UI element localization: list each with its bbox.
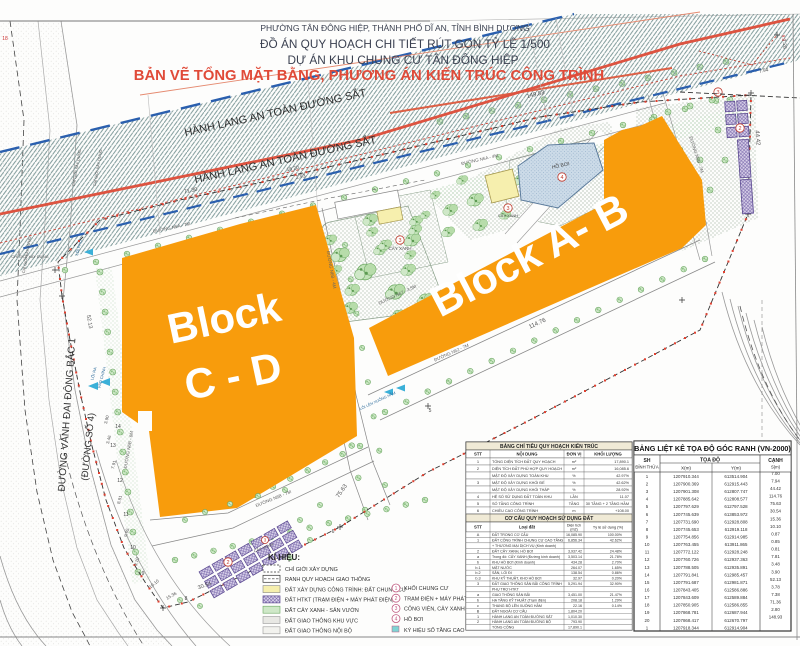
svg-text:9.5: 9.5	[781, 35, 787, 42]
svg-text:m²: m²	[572, 467, 577, 471]
svg-text:264.07: 264.07	[571, 566, 582, 570]
svg-text:75.63: 75.63	[770, 501, 782, 506]
svg-text:42.62%: 42.62%	[610, 539, 623, 543]
svg-text:16,085.6: 16,085.6	[614, 467, 629, 471]
svg-text:1207791.841: 1207791.841	[673, 572, 699, 577]
svg-text:b.2: b.2	[475, 571, 480, 575]
svg-text:BẢNG CHỈ TIÊU QUY HOẠCH KIẾN T: BẢNG CHỈ TIÊU QUY HOẠCH KIẾN TRÚC	[500, 442, 598, 450]
svg-text:A: A	[477, 533, 480, 537]
svg-text:11: 11	[645, 550, 650, 555]
svg-text:PHỤ TRỢ HTKT: PHỤ TRỢ HTKT	[492, 588, 520, 592]
svg-text:1207760.726: 1207760.726	[673, 557, 699, 562]
svg-text:3.90: 3.90	[771, 569, 780, 574]
svg-text:16,085.90: 16,085.90	[566, 533, 582, 537]
svg-text:2: 2	[477, 620, 479, 624]
svg-text:1207918.344: 1207918.344	[673, 625, 699, 630]
svg-text:PHƯỜNG TÂN ĐÔNG HIỆP, THÀNH PH: PHƯỜNG TÂN ĐÔNG HIỆP, THÀNH PHỐ DĨ AN, T…	[260, 22, 529, 33]
svg-text:148.93: 148.93	[769, 615, 783, 620]
svg-text:1207797.629: 1207797.629	[673, 504, 699, 509]
svg-text:612808.577: 612808.577	[724, 497, 748, 502]
svg-text:612919.118: 612919.118	[725, 527, 748, 532]
svg-text:1207901.308: 1207901.308	[673, 489, 699, 494]
svg-text:STT: STT	[474, 452, 482, 457]
svg-text:7.81: 7.81	[771, 554, 780, 559]
svg-text:MẬT ĐỘ XÂY DỰNG KHỐI ĐẾ: MẬT ĐỘ XÂY DỰNG KHỐI ĐẾ	[492, 480, 545, 485]
svg-text:1207791.687: 1207791.687	[673, 580, 699, 585]
svg-text:434.28: 434.28	[571, 560, 582, 564]
svg-text:612915.443: 612915.443	[724, 482, 748, 487]
svg-text:30.54: 30.54	[770, 509, 782, 514]
svg-text:2: 2	[738, 126, 741, 132]
svg-text:X(m): X(m)	[681, 466, 691, 471]
svg-text:613911.865: 613911.865	[725, 542, 748, 547]
svg-text:613853.972: 613853.972	[724, 512, 748, 517]
svg-text:m: m	[572, 509, 575, 513]
svg-text:15: 15	[645, 580, 650, 585]
svg-text:ĐẤT GIAO THÔNG NỘI BỘ: ĐẤT GIAO THÔNG NỘI BỘ	[285, 628, 352, 635]
svg-text:TỔNG CỘNG: TỔNG CỘNG	[492, 625, 514, 630]
svg-text:30 TẦNG + 2 TẦNG HẦM: 30 TẦNG + 2 TẦNG HẦM	[586, 502, 629, 506]
svg-text:2.70%: 2.70%	[612, 560, 623, 564]
svg-text:3: 3	[395, 606, 398, 612]
svg-text:52.13: 52.13	[770, 577, 782, 582]
svg-text:20: 20	[645, 618, 650, 623]
svg-text:KÝ HIỆU SỐ TẦNG CAO: KÝ HIỆU SỐ TẦNG CAO	[404, 626, 464, 634]
svg-text:CƠ CẤU QUY HOẠCH SỬ DỤNG ĐẤT: CƠ CẤU QUY HOẠCH SỬ DỤNG ĐẤT	[505, 515, 594, 522]
svg-text:Trong đó: CÂY XANH (Đường kín: Trong đó: CÂY XANH (Đường kính doanh)	[492, 555, 560, 559]
svg-text:TỌA ĐỘ: TỌA ĐỘ	[700, 456, 720, 464]
svg-text:CÂY XANH: CÂY XANH	[498, 213, 518, 218]
svg-text:44.42: 44.42	[770, 486, 782, 491]
svg-text:ĐẤT XÂY DỰNG CÔNG TRÌNH: ĐẤT C: ĐẤT XÂY DỰNG CÔNG TRÌNH: ĐẤT CHUNG CƯ	[285, 586, 407, 593]
svg-text:21.47%: 21.47%	[610, 593, 623, 597]
svg-text:1207745.653: 1207745.653	[673, 527, 699, 532]
svg-text:KÍ HIỆU:: KÍ HIỆU:	[268, 553, 300, 562]
svg-text:1207868.417: 1207868.417	[673, 618, 699, 623]
svg-text:4: 4	[395, 616, 398, 622]
svg-text:612985.457: 612985.457	[724, 572, 748, 577]
svg-text:9: 9	[142, 571, 145, 577]
svg-text:10: 10	[645, 542, 650, 547]
svg-text:612586.886: 612586.886	[724, 588, 748, 593]
svg-text:2: 2	[477, 549, 479, 553]
svg-text:NỘI DUNG: NỘI DUNG	[517, 452, 538, 457]
svg-text:ĐẤT NGOÀI CƠ CẤU: ĐẤT NGOÀI CƠ CẤU	[492, 609, 527, 613]
svg-text:10: 10	[130, 545, 136, 551]
svg-text:THANG BỘ LÊN XUỐNG HẦM: THANG BỘ LÊN XUỐNG HẦM	[492, 603, 542, 608]
svg-text:BẢN VẼ TỔNG MẶT BẰNG, PHƯƠNG Á: BẢN VẼ TỔNG MẶT BẰNG, PHƯƠNG ÁN KIẾN TRÚ…	[134, 66, 604, 84]
svg-text:793.90: 793.90	[571, 620, 582, 624]
svg-text:612928.808: 612928.808	[724, 519, 748, 524]
svg-text:14: 14	[115, 424, 121, 430]
svg-text:CHỈ GIỚI XÂY DỰNG: CHỈ GIỚI XÂY DỰNG	[11, 254, 48, 259]
svg-text:1,010.30: 1,010.30	[568, 615, 582, 619]
svg-text:612589.884: 612589.884	[724, 595, 748, 600]
svg-text:SÂN, LỐI ĐI: SÂN, LỐI ĐI	[492, 570, 512, 575]
svg-text:CÂY XANH: CÂY XANH	[389, 245, 412, 251]
svg-text:71.36: 71.36	[770, 600, 782, 605]
svg-text:RANH QUY HOẠCH GIAO THÔNG: RANH QUY HOẠCH GIAO THÔNG	[285, 576, 370, 583]
svg-text:42.62%: 42.62%	[616, 481, 630, 485]
svg-text:1.29%: 1.29%	[612, 598, 623, 602]
svg-text:ĐẤT GIAO THÔNG KHU VỰC: ĐẤT GIAO THÔNG KHU VỰC	[285, 617, 358, 624]
svg-text:ĐẤT CÂY XANH - SÂN VƯỜN: ĐẤT CÂY XANH - SÂN VƯỜN	[285, 607, 359, 614]
svg-text:19: 19	[645, 610, 650, 615]
svg-text:6,856.34: 6,856.34	[568, 539, 582, 543]
svg-text:0.86%: 0.86%	[612, 571, 623, 575]
svg-text:18: 18	[2, 36, 8, 42]
svg-text:2: 2	[226, 560, 229, 566]
svg-text:100.00%: 100.00%	[608, 533, 623, 537]
svg-text:4: 4	[560, 175, 563, 181]
svg-text:7.94: 7.94	[771, 478, 780, 483]
svg-text:612928.248: 612928.248	[724, 550, 748, 555]
svg-text:MẬT ĐỘ XÂY DỰNG KHỐI THÁP: MẬT ĐỘ XÂY DỰNG KHỐI THÁP	[492, 487, 550, 492]
svg-text:HẠ TẦNG KỸ THUẬT (Trạm điện): HẠ TẦNG KỸ THUẬT (Trạm điện)	[492, 597, 546, 602]
svg-text:DIỆN TÍCH ĐẤT PHÙ HỢP QUY HOẠC: DIỆN TÍCH ĐẤT PHÙ HỢP QUY HOẠCH	[492, 466, 562, 471]
svg-text:0.85: 0.85	[771, 539, 780, 544]
svg-text:STT: STT	[474, 525, 482, 530]
svg-text:1207900.369: 1207900.369	[673, 482, 699, 487]
svg-text:24.48%: 24.48%	[610, 549, 623, 553]
svg-text:HỒ BƠI: HỒ BƠI	[404, 616, 423, 623]
svg-text:21.78%: 21.78%	[610, 555, 623, 559]
svg-text:GIAO THÔNG SÂN BÃI: GIAO THÔNG SÂN BÃI	[492, 592, 530, 597]
svg-text:16: 16	[645, 588, 650, 593]
svg-text:612807.747: 612807.747	[724, 489, 748, 494]
svg-text:7.00: 7.00	[771, 471, 780, 476]
svg-text:ĐỒ ÁN QUY HOẠCH CHI TIẾT RÚT G: ĐỒ ÁN QUY HOẠCH CHI TIẾT RÚT GỌN TỶ LỆ 1…	[260, 37, 550, 51]
svg-text:612586.855: 612586.855	[724, 603, 748, 608]
svg-text:Tỷ lệ sử dụng (%): Tỷ lệ sử dụng (%)	[593, 526, 624, 530]
svg-text:ĐẤT GIAO THÔNG SÂN BÃI CÔNG TR: ĐẤT GIAO THÔNG SÂN BÃI CÔNG TRÌNH	[492, 581, 562, 586]
svg-text:LẦN: LẦN	[570, 495, 578, 499]
svg-text:+ THƯƠNG MẠI DỊCH VỤ (Kinh doa: + THƯƠNG MẠI DỊCH VỤ (Kinh doanh)	[492, 544, 556, 548]
svg-text:CẠNH: CẠNH	[768, 458, 783, 464]
svg-text:28.92%: 28.92%	[616, 488, 630, 492]
svg-text:114.76: 114.76	[769, 494, 783, 499]
svg-text:1207772.122: 1207772.122	[673, 550, 699, 555]
svg-text:1207868.781: 1207868.781	[673, 610, 699, 615]
svg-text:8: 8	[185, 596, 188, 602]
svg-text:+108.00: +108.00	[615, 509, 629, 513]
svg-text:SH: SH	[644, 458, 651, 464]
svg-text:612914.904: 612914.904	[724, 625, 748, 630]
svg-text:10.10: 10.10	[770, 524, 782, 529]
svg-text:3.78: 3.78	[771, 584, 780, 589]
svg-text:m²: m²	[572, 460, 577, 464]
svg-text:1207850.905: 1207850.905	[673, 603, 699, 608]
svg-text:1: 1	[395, 586, 398, 592]
svg-text:CHỈ GIỚI XÂY DỰNG: CHỈ GIỚI XÂY DỰNG	[285, 566, 338, 573]
svg-text:1207843.609: 1207843.609	[673, 595, 699, 600]
svg-text:1: 1	[477, 539, 479, 543]
svg-text:1207763.455: 1207763.455	[673, 542, 699, 547]
svg-text:612935.891: 612935.891	[724, 565, 748, 570]
svg-text:1: 1	[477, 615, 479, 619]
svg-text:1207745.639: 1207745.639	[673, 512, 699, 517]
svg-text:SỐ TẦNG CÔNG TRÌNH: SỐ TẦNG CÔNG TRÌNH	[492, 501, 534, 506]
svg-text:1207731.690: 1207731.690	[673, 519, 699, 524]
svg-text:1207843.405: 1207843.405	[673, 588, 699, 593]
svg-text:KHU HỒ BƠI (Kinh doanh): KHU HỒ BƠI (Kinh doanh)	[492, 559, 535, 564]
svg-text:138.54: 138.54	[571, 571, 582, 575]
svg-text:42.97%: 42.97%	[616, 474, 630, 478]
svg-text:17,890.1: 17,890.1	[614, 460, 629, 464]
svg-text:32.97: 32.97	[573, 577, 582, 581]
svg-text:S(m): S(m)	[771, 465, 781, 470]
svg-text:KHỐI CHUNG CƯ: KHỐI CHUNG CƯ	[404, 585, 449, 592]
svg-text:11.07: 11.07	[620, 495, 629, 499]
svg-text:3: 3	[506, 206, 509, 212]
svg-text:0.81: 0.81	[771, 547, 780, 552]
svg-text:KHỐI LƯỢNG: KHỐI LƯỢNG	[594, 452, 622, 457]
svg-text:2: 2	[395, 596, 398, 602]
svg-text:MẶT NƯỚC: MẶT NƯỚC	[492, 565, 512, 570]
svg-text:HỆ SỐ SỬ DỤNG ĐẤT TOÀN KHU: HỆ SỐ SỬ DỤNG ĐẤT TOÀN KHU	[492, 494, 552, 499]
svg-text:3,937.42: 3,937.42	[568, 549, 582, 553]
svg-text:b: b	[477, 598, 479, 602]
svg-text:Loại đất: Loại đất	[519, 525, 536, 530]
svg-text:14: 14	[645, 572, 650, 577]
svg-text:b.3: b.3	[475, 577, 480, 581]
svg-text:3: 3	[477, 582, 479, 586]
svg-text:ĐỈNH THỬA: ĐỈNH THỬA	[635, 465, 658, 470]
svg-text:1207754.856: 1207754.856	[673, 535, 699, 540]
svg-text:1207788.505: 1207788.505	[673, 565, 699, 570]
svg-text:ĐẤT TRONG CƠ CẤU: ĐẤT TRONG CƠ CẤU	[492, 533, 529, 537]
svg-text:0.87: 0.87	[771, 531, 780, 536]
svg-text:1207910.344: 1207910.344	[673, 474, 699, 479]
svg-text:1207885.642: 1207885.642	[673, 497, 699, 502]
svg-text:b: b	[477, 560, 479, 564]
svg-text:ĐẤT HTKT (TRẠM ĐIỆN + MÁY PHÁT: ĐẤT HTKT (TRẠM ĐIỆN + MÁY PHÁT ĐIỆN)	[285, 596, 394, 604]
svg-text:208.18: 208.18	[571, 598, 582, 602]
svg-text:CÔNG VIÊN, CÂY XANH: CÔNG VIÊN, CÂY XANH	[404, 605, 465, 613]
svg-text:13: 13	[110, 443, 116, 449]
svg-text:5: 5	[429, 408, 432, 414]
svg-text:3: 3	[716, 90, 719, 96]
svg-text:3: 3	[398, 238, 401, 244]
svg-text:13: 13	[645, 565, 650, 570]
svg-text:BẢNG LIỆT KÊ TỌA ĐỘ GÓC RANH (: BẢNG LIỆT KÊ TỌA ĐỘ GÓC RANH (VN-2000)	[634, 444, 791, 453]
svg-text:ĐẤT CÂY XANH, HỒ BƠI: ĐẤT CÂY XANH, HỒ BƠI	[492, 548, 533, 553]
svg-text:12: 12	[645, 557, 650, 562]
svg-text:2.80: 2.80	[771, 607, 780, 612]
svg-text:3,503.14: 3,503.14	[568, 555, 582, 559]
svg-text:612670.797: 612670.797	[724, 618, 748, 623]
svg-text:15.36: 15.36	[770, 516, 782, 521]
svg-text:612797.528: 612797.528	[724, 504, 748, 509]
svg-text:0.14%: 0.14%	[612, 604, 623, 608]
svg-text:612914.985: 612914.985	[724, 535, 748, 540]
svg-text:(m2): (m2)	[570, 528, 577, 532]
svg-text:12: 12	[117, 478, 123, 484]
svg-text:DỰ ÁN KHU CHUNG CƯ TÂN ĐÔNG HI: DỰ ÁN KHU CHUNG CƯ TÂN ĐÔNG HIỆP	[288, 53, 519, 67]
svg-text:b.1: b.1	[475, 566, 480, 570]
svg-text:TẦNG: TẦNG	[569, 502, 580, 506]
svg-text:613514.904: 613514.904	[724, 474, 748, 479]
svg-text:612981.871: 612981.871	[724, 580, 748, 585]
svg-text:HÀNH LANG AN TOÀN ĐƯỜNG BỘ: HÀNH LANG AN TOÀN ĐƯỜNG BỘ	[492, 619, 551, 624]
svg-text:18: 18	[645, 603, 650, 608]
svg-text:3,451.00: 3,451.00	[568, 593, 582, 597]
svg-text:KHU KỸ THUẬT, KHO HỒ BƠI: KHU KỸ THUẬT, KHO HỒ BƠI	[492, 576, 542, 581]
svg-text:1,804.20: 1,804.20	[568, 609, 582, 613]
svg-text:612937.363: 612937.363	[724, 557, 748, 562]
svg-text:c: c	[477, 604, 479, 608]
svg-text:HÀNH LANG AN TOÀN ĐƯỜNG SẮT: HÀNH LANG AN TOÀN ĐƯỜNG SẮT	[492, 614, 554, 619]
svg-text:MẬT ĐỘ XÂY DỰNG TOÀN KHU: MẬT ĐỘ XÂY DỰNG TOÀN KHU	[492, 473, 549, 478]
svg-text:17,890.1: 17,890.1	[568, 626, 582, 630]
svg-text:5,291.94: 5,291.94	[568, 582, 582, 586]
svg-text:ĐƠN VỊ: ĐƠN VỊ	[567, 452, 582, 457]
svg-text:6: 6	[332, 529, 335, 535]
svg-text:22.16: 22.16	[573, 604, 582, 608]
svg-text:ĐẤT CÔNG TRÌNH CHUNG CƯ CAO TẦ: ĐẤT CÔNG TRÌNH CHUNG CƯ CAO TẦNG	[492, 538, 564, 543]
svg-text:CHIỀU CAO CÔNG TRÌNH: CHIỀU CAO CÔNG TRÌNH	[492, 508, 538, 513]
svg-text:3.48: 3.48	[771, 562, 780, 567]
svg-text:1.65%: 1.65%	[612, 566, 623, 570]
svg-text:0.20%: 0.20%	[612, 577, 623, 581]
svg-text:612687.944: 612687.944	[724, 610, 748, 615]
svg-text:Y(m): Y(m)	[731, 466, 741, 471]
svg-text:TỔNG DIỆN TÍCH ĐẤT QUY HOẠCH: TỔNG DIỆN TÍCH ĐẤT QUY HOẠCH	[492, 459, 556, 464]
svg-text:11: 11	[123, 512, 128, 518]
svg-text:32.90%: 32.90%	[610, 582, 623, 586]
svg-text:7.38: 7.38	[771, 592, 780, 597]
svg-text:17: 17	[645, 595, 650, 600]
svg-text:B: B	[477, 609, 480, 613]
